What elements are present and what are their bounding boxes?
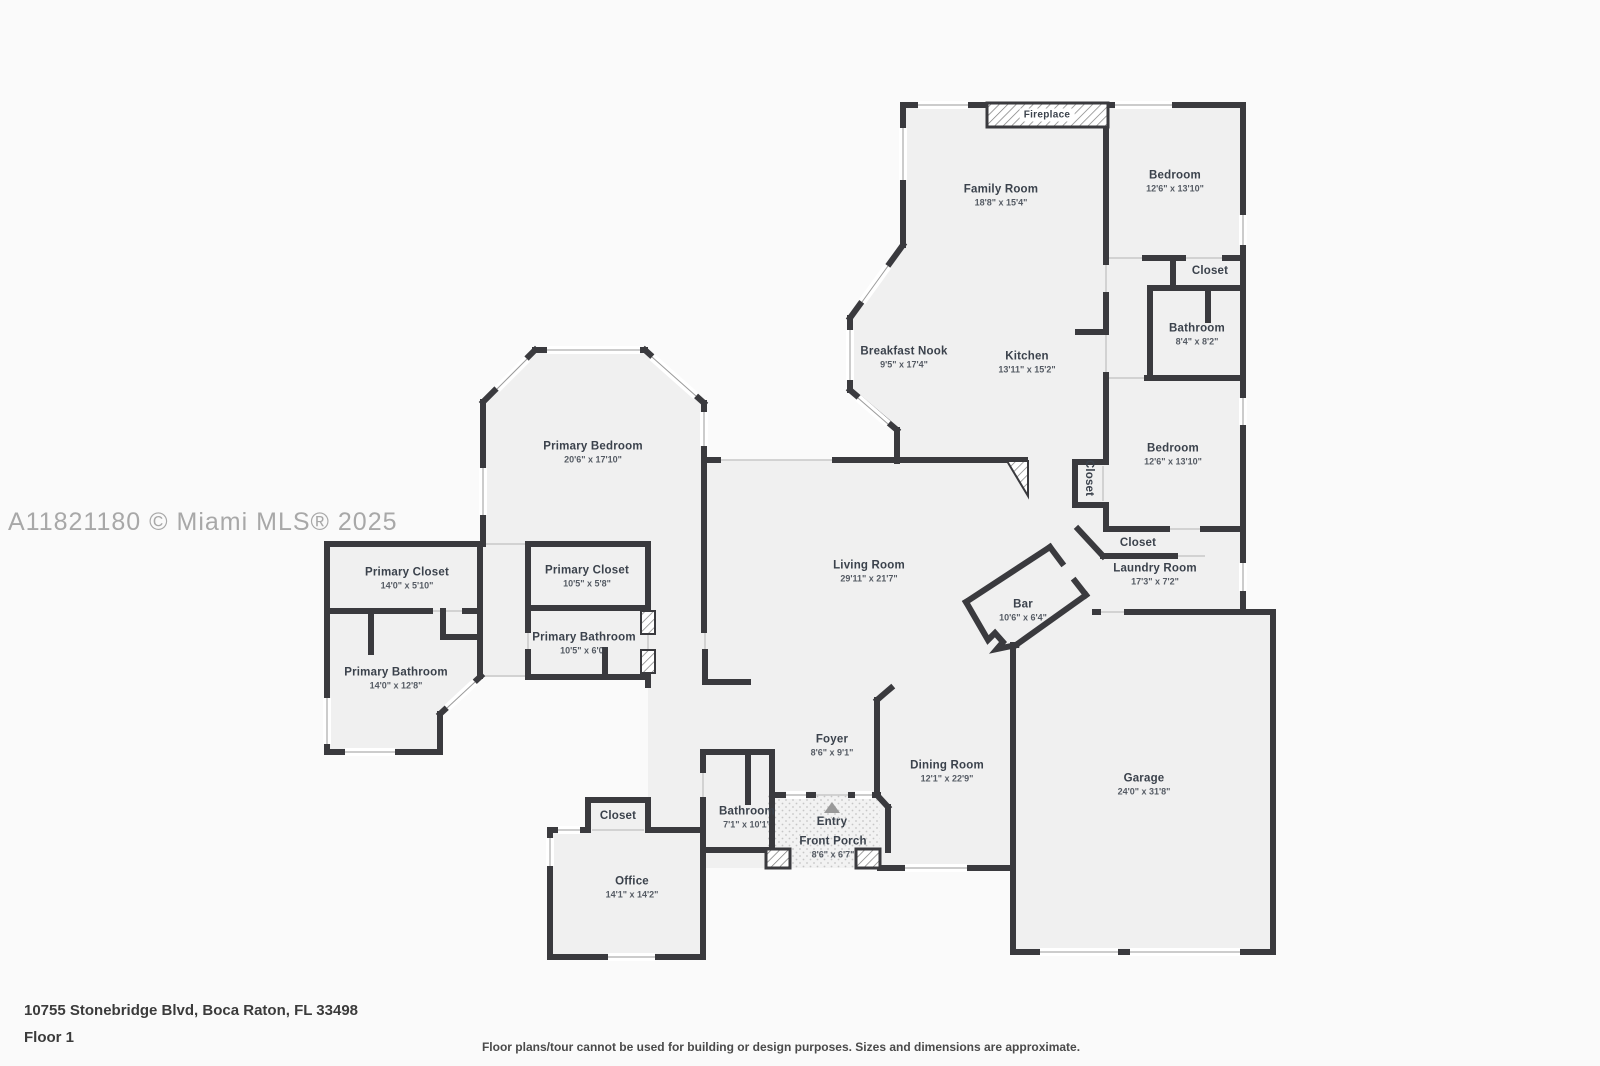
property-address: 10755 Stonebridge Blvd, Boca Raton, FL 3… [24, 1002, 358, 1019]
floor-plan-page: A11821180 © Miami MLS® 2025 Family Room1… [0, 0, 1600, 1066]
linen-hatch-upper [641, 611, 655, 634]
fireplace-label: Fireplace [1020, 109, 1075, 122]
floor-number: Floor 1 [24, 1029, 74, 1046]
mls-watermark: A11821180 © Miami MLS® 2025 [8, 508, 398, 537]
porch-column-left [766, 849, 790, 868]
linen-hatch-lower [641, 650, 655, 673]
disclaimer-text: Floor plans/tour cannot be used for buil… [482, 1040, 1080, 1054]
porch-column-right [856, 849, 880, 868]
